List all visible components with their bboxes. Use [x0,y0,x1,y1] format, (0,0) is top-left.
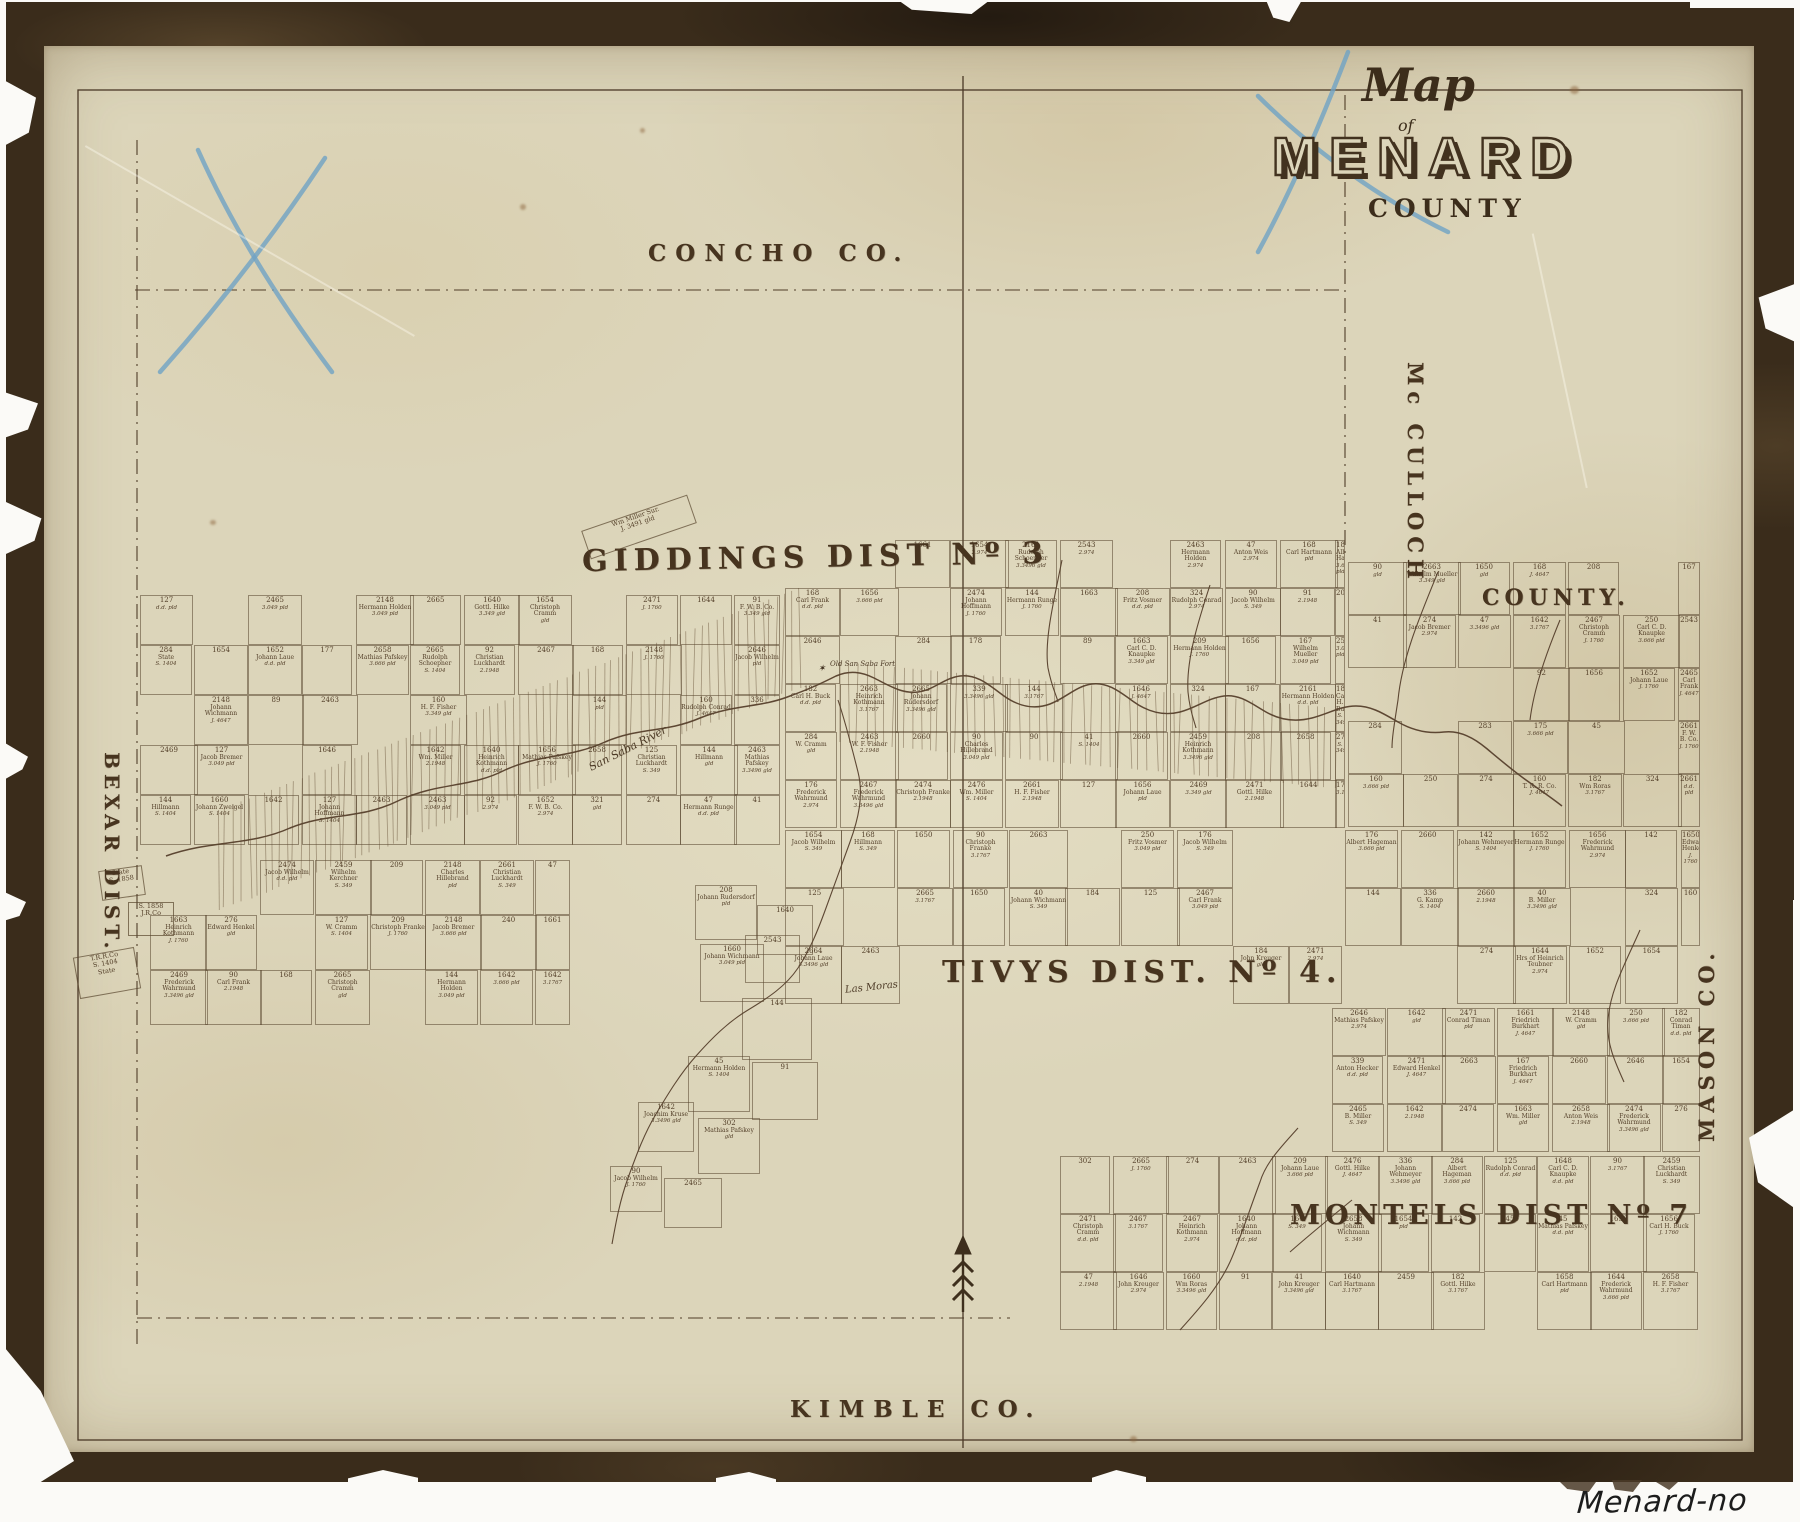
survey-plot: 24633.049 pld [410,795,465,845]
survey-plot: 2660 [1552,1056,1606,1104]
survey-plot: 40Johann WichmannS. 349 [1009,888,1068,946]
survey-plot: 1640Gottl. Hilke3.349 gld [464,595,520,645]
survey-plot: 41 [734,795,780,845]
survey-plot: 302 [1060,1156,1110,1214]
survey-plot: 2646Mathias Pafskey2.974 [1332,1008,1386,1056]
survey-plot: 2543 [745,935,800,983]
survey-plot: 274 [1458,774,1514,827]
survey-plot: 2465B. MillerS. 349 [1332,1104,1384,1152]
survey-plot: 45 [1568,721,1625,774]
survey-plot: 2474 [1442,1104,1494,1152]
survey-plot: 209Hermann HoldenJ. 1760 [1170,636,1229,684]
survey-plot: S. 1858J.R.Co [128,902,174,936]
label-tivys-district: TIVYS DIST. Nº 4. [942,955,1342,990]
survey-plot: 167 [1678,562,1700,615]
survey-plot: 144Hermann Holden3.049 pld [425,970,478,1025]
survey-plot: 1644Frederick Wahrmund3.666 pld [1590,1272,1642,1330]
survey-plot: 24693.349 gld [1170,780,1227,828]
survey-plot: 2543 [1678,615,1700,668]
survey-plot: 1644 [680,595,732,645]
survey-plot: 283 [1458,721,1512,774]
survey-plot: 208 [1225,732,1282,780]
survey-plot: 2658Anton Weis2.1948 [1552,1104,1610,1152]
survey-plot: 90Charles Hillebrand3.049 pld [950,732,1003,780]
survey-plot: 209 [370,860,423,915]
label-bexar-district: BEXAR DIST. [100,752,124,953]
survey-plot: 1654 [194,645,248,695]
survey-plot: 144Hillmanngld [680,745,738,795]
survey-plot: 1654Jacob WilhelmS. 349 [785,830,842,888]
survey-plot: 24653.049 pld [248,595,302,645]
survey-plot: 47Hermann Runged.d. pld [680,795,737,845]
survey-plot: 1652Johann Laued.d. pld [248,645,302,695]
survey-plot: 1652Hermann RungeJ. 1760 [1513,830,1566,888]
survey-plot: 250Fritz Vosmer3.049 pld [1121,830,1174,888]
survey-plot: 16423.666 pld [480,970,533,1025]
survey-plot: 184 [1065,888,1120,946]
survey-plot: 250 [1403,774,1458,827]
survey-plot: 144 [1345,888,1401,946]
survey-plot: 2665 [410,595,461,645]
survey-plot: 2463 [1219,1156,1276,1214]
survey-plot: 1642gld [1387,1008,1446,1056]
survey-plot: 89 [248,695,304,745]
survey-plot: 2467Christoph CrammJ. 1760 [1568,615,1620,668]
survey-plot: 2661Christian LuckhardtS. 349 [480,860,534,915]
survey-plot: 2465Carl FrankJ. 4647 [1678,668,1700,721]
survey-plot: 922.974 [464,795,517,845]
survey-plot: 1652F. W. B. Co.2.974 [518,795,573,845]
survey-plot: 92Christian Luckhardt2.1948 [464,645,515,695]
survey-plot: 2663 [1442,1056,1496,1104]
survey-plot: 2148Jacob Bremer3.666 pld [425,915,482,970]
label-montels-district: MONTELS DIST Nº 7 [1290,1200,1693,1231]
survey-plot: 184Carl H. BuckS. 349 [1335,684,1345,732]
survey-plot: 1663 [1060,588,1118,636]
survey-plot: 2467Heinrich Kothmann2.974 [1166,1214,1218,1272]
survey-plot: 2469 [140,745,198,795]
survey-plot: 208 [1335,588,1345,636]
survey-plot: 89 [1060,636,1115,684]
survey-plot: 473.3496 gld [1458,615,1511,668]
survey-plot: 1642 [248,795,299,845]
survey-plot: 1753.666 pld [1513,721,1568,774]
survey-plot: 1646J. 4647 [1115,684,1167,732]
survey-plot: 2467 [518,645,574,695]
survey-plot: 176Albert Hageman3.666 pld [1345,830,1398,888]
survey-plot: 1656 [1225,636,1276,684]
survey-plot: 324 [1623,774,1682,827]
survey-plot: 167 [1225,684,1280,732]
survey-plot: 2665Johann Rudersdorf3.3496 gld [895,684,947,732]
survey-plot: 168 [572,645,623,695]
survey-plot: 1443.1767 [1005,684,1063,732]
survey-plot: 1646John Kreuger2.974 [1113,1272,1164,1330]
survey-plot: 2658 [1280,732,1331,780]
survey-plot: 1652Johann LaueJ. 1760 [1623,668,1675,721]
survey-plot: 16423.1767 [1513,615,1566,668]
survey-plot: 2161Hermann Holdend.d. pld [1280,684,1336,732]
survey-plot: 127Jacob Bremer3.049 pld [194,745,249,795]
survey-plot: 2663 [1009,830,1068,888]
survey-plot: 1644Hrs of Heinrich Teubner2.974 [1513,946,1567,1004]
label-mcculloch-county-word: COUNTY. [1482,585,1630,611]
survey-plot: 274Jacob Bremer2.974 [1403,615,1456,668]
survey-plot: 2661H. F. Fisher2.1948 [1005,780,1059,828]
survey-plot: 324 [1625,888,1678,946]
survey-plot: 2471Edward HenkelJ. 4647 [1387,1056,1446,1104]
survey-plot: 90 [1005,732,1063,780]
survey-plot: 1663Carl C. D. Knaupke3.349 gld [1115,636,1168,684]
survey-plot: 2148Hermann Holden3.049 pld [356,595,414,645]
survey-plot: 2463Hermann Holden2.974 [1170,540,1221,588]
survey-plot: 324Rudolph Conrad2.974 [1170,588,1223,636]
survey-plot: 1640Carl Hartmann3.1767 [1325,1272,1379,1330]
survey-plot: 339Anton Heckerd.d. pld [1332,1056,1383,1104]
survey-plot: 2474Christoph Franke2.1948 [895,780,951,828]
survey-plot: 2663Heinrich Kothmann3.1767 [840,684,898,732]
survey-plot: 160T. R. R. Co.J. 4647 [1513,774,1566,827]
survey-plot: 25433.049 pld [1335,636,1345,684]
survey-plot: 2471J. 1760 [626,595,678,645]
survey-plot: 1661 [535,915,570,970]
survey-plot: 1603.666 pld [1348,774,1404,827]
survey-plot: 912.1948 [1280,588,1335,636]
survey-plot: 274S. 349 [1335,732,1345,780]
survey-plot: 1658Carl Hartmannpld [1537,1272,1592,1330]
survey-plot: 167Wilhelm Mueller3.049 pld [1280,636,1331,684]
survey-plot: 92 [1513,668,1570,721]
survey-plot: 1646 [302,745,352,795]
survey-plot: 142Johann WehmeyerS. 1404 [1457,830,1515,888]
survey-plot: 176Jacob WilhelmS. 349 [1177,830,1233,888]
survey-plot: 47Anton Weis2.974 [1225,540,1277,588]
survey-plot: 2148Charles Hillebrandpld [425,860,480,915]
survey-plot: 2463W. F. Fisher2.1948 [840,732,899,780]
label-concho-county: CONCHO CO. [648,240,910,267]
survey-plot: 176Frederick Wahrmund2.974 [785,780,837,828]
survey-plots-layer: 127d.d. pld24653.049 pld2148Hermann Hold… [0,0,1800,1522]
survey-plot: 336 [734,695,780,745]
survey-plot: 2148J. 1760 [626,645,682,695]
survey-plot: 90Jacob WilhelmJ. 1760 [610,1166,662,1212]
survey-plot: 26653.1767 [897,888,953,946]
survey-plot: 177 [302,645,352,695]
survey-plot: 90Jacob WilhelmS. 349 [1225,588,1281,636]
survey-plot: 2459 [1378,1272,1434,1330]
survey-plot: 1656 [1568,668,1620,721]
survey-plot: 127W. CrammS. 1404 [315,915,368,970]
survey-plot: 167Friedrich BurkhartJ. 4647 [1497,1056,1549,1104]
survey-plot: 41S. 1404 [1060,732,1118,780]
survey-plot: 1661Friedrich BurkhartJ. 4647 [1497,1008,1554,1056]
survey-plot: 2665Christoph Crammgld [315,970,370,1025]
survey-plot: 1656Johann Lauepld [1115,780,1170,828]
survey-plot: 208Fritz Vosmerd.d. pld [1115,588,1170,636]
survey-plot: 2661d.d. pld [1678,774,1700,827]
survey-plot: 284W. Crammgld [785,732,837,780]
survey-plot: 1783.1767 [1335,780,1345,828]
survey-plot: 160 [1681,888,1700,946]
handwritten-note: Menard-no date [1573,1482,1800,1522]
survey-plot: 90Christoph Franke3.1767 [953,830,1008,888]
survey-plot: 2469Frederick Wahrmund3.3496 gld [150,970,208,1025]
paper-tear [1793,900,1800,1522]
survey-plot: 2471Christoph Crammd.d. pld [1060,1214,1116,1272]
survey-plot: 91F. W. B. Co.3.349 gld [734,595,780,645]
survey-plot: 274 [1457,946,1516,1004]
survey-plot: 2471Gottl. Hilke2.1948 [1225,780,1284,828]
survey-plot: 47 [535,860,570,915]
survey-plot: 127 [1060,780,1117,828]
survey-plot: 2459Wilhelm KerchnerS. 349 [315,860,372,915]
survey-plot: 274 [1166,1156,1219,1214]
survey-plot: 2658Mathias Pafskey3.666 pld [356,645,409,695]
paper-tear [1690,0,1800,8]
survey-plot: 184Albert Hageman3.666 pld [1335,540,1345,588]
survey-plot: 336G. KampS. 1404 [1401,888,1459,946]
survey-plot: 1650Edward HenkelJ. 1760 [1681,830,1700,888]
survey-plot: 250Carl C. D. Knaupke3.666 pld [1623,615,1680,668]
survey-plot: 1652 [1569,946,1621,1004]
survey-plot: 2459Heinrich Kothmann3.3496 gld [1170,732,1226,780]
survey-plot: 1650 [897,830,950,888]
survey-plot: 1663Wm. Millergld [1497,1104,1549,1152]
survey-plot: 16563.666 pld [840,588,899,636]
survey-plot: 144HillmannS. 1404 [140,795,191,845]
survey-plot: 127d.d. pld [140,595,193,645]
stain [210,520,216,525]
survey-plot: 40B. Miller3.3496 gld [1513,888,1571,946]
survey-plot: 1650 [953,888,1005,946]
title-word-county: COUNTY [1368,194,1527,223]
survey-plot: 168HillmannS. 349 [841,830,895,888]
map-sheet: 127d.d. pld24653.049 pld2148Hermann Hold… [0,0,1800,1522]
survey-plot: 1640Johann Hoffmannd.d. pld [1219,1214,1274,1272]
survey-plot: 125 [1121,888,1180,946]
survey-plot: 168Carl Hartmannpld [1280,540,1338,588]
stain [640,128,645,133]
survey-plot: 209Christoph FrankeJ. 1760 [370,915,426,970]
survey-plot: 2148W. Crammgld [1552,1008,1610,1056]
label-mcculloch: Mc CULLOCH [1403,362,1428,585]
survey-plot: T.R.R.CoS. 1404State [73,947,141,999]
survey-plot: 2474Frederick Wahrmund3.3496 gld [1607,1104,1661,1152]
survey-plot: 127Johann HoffmannS. 1404 [302,795,357,845]
fort-star-icon: ✶ [818,664,826,674]
label-old-san-saba-fort: Old San Saba Fort [830,660,895,668]
survey-plot: 1656Mathias PafskeyJ. 1760 [518,745,576,795]
survey-plot: 142 [1625,830,1677,888]
survey-plot: 2463Mathias Pafskey3.3496 gld [734,745,780,795]
survey-plot: 1644 [1280,780,1337,828]
survey-plot: 160H. F. Fisher3.349 gld [410,695,467,745]
survey-plot: 324 [1170,684,1226,732]
survey-plot: 182Gottl. Hilke3.1767 [1431,1272,1485,1330]
survey-plot: 45Hermann HoldenS. 1404 [688,1056,750,1112]
survey-plot: 1642Joachim Kruse3.3496 gld [638,1102,694,1152]
survey-plot: 2476Wm. MillerS. 1404 [950,780,1003,828]
survey-plot: 2467Frederick Wahrmund3.3496 gld [840,780,897,828]
survey-plot: 2463 [302,695,358,745]
survey-plot: 240 [480,915,537,970]
survey-plot: 2660 [895,732,948,780]
survey-plot: 16423.1767 [535,970,570,1025]
survey-plot: 90gld [1348,562,1407,615]
survey-plot: 144pld [572,695,627,745]
title-county-name: MENARD [1272,126,1581,188]
survey-plot: 2503.666 pld [1607,1008,1665,1056]
survey-plot: 321gld [572,795,622,845]
survey-plot: 26602.1948 [1457,888,1515,946]
survey-plot: 25432.974 [1060,540,1113,588]
survey-plot: 160Rudolph ConradJ. 4647 [680,695,732,745]
survey-plot: 144Hermann RungeJ. 1760 [1005,588,1059,636]
survey-plot: 2661F. W. B. Co.J. 1760 [1678,721,1700,774]
survey-plot: 168Carl Frankd.d. pld [785,588,840,636]
survey-plot: 302Mathias Pafskeygld [698,1118,760,1174]
survey-plot: 1642Wm. Miller2.1948 [410,745,461,795]
survey-plot: 1654Christoph Crammgld [518,595,572,645]
survey-plot: 90Carl Frank2.1948 [205,970,262,1025]
survey-plot: 91 [1219,1272,1272,1330]
survey-plot: 2474Jacob Wilhelmd.d. pld [260,860,314,915]
survey-plot: 2660 [1401,830,1454,888]
survey-plot: 2463 [356,795,407,845]
survey-plot: 274 [626,795,681,845]
survey-plot: 1660Wm Roras3.3496 gld [1166,1272,1217,1330]
survey-plot: 2665J. 1760 [1113,1156,1169,1214]
survey-plot: 276Edward Henkelgld [205,915,257,970]
stain [1130,1436,1137,1442]
survey-plot: 2148Johann WichmannJ. 4647 [194,695,248,745]
survey-plot: 41John Kreuger3.3496 gld [1272,1272,1326,1330]
survey-plot: 1656Frederick Wahrmund2.974 [1569,830,1626,888]
survey-plot: 284 [895,636,952,684]
survey-plot: 91 [752,1062,818,1120]
survey-plot: 1640Heinrich Kothmannd.d. pld [464,745,519,795]
survey-plot: 208Johann Rudersdorfpld [695,885,757,940]
survey-plot: 284 [1348,721,1402,774]
survey-plot: 2658H. F. Fisher3.1767 [1643,1272,1698,1330]
stain [520,204,526,210]
label-mason-county: MASON CO. [1694,947,1719,1142]
survey-plot: 2646Jacob Wilhelmpld [734,645,780,695]
survey-plot: 16422.1948 [1387,1104,1442,1152]
survey-plot: 182Carl H. Buckd.d. pld [785,684,836,732]
label-kimble-county: KIMBLE CO. [790,1396,1042,1423]
survey-plot: 144 [742,998,812,1060]
survey-plot: 2646 [1607,1056,1664,1104]
survey-plot: 3393.3496 gld [950,684,1008,732]
survey-plot: 178 [950,636,1001,684]
survey-plot: 472.1948 [1060,1272,1117,1330]
stain [1570,86,1579,94]
title-word-map: Map [1362,58,1475,112]
survey-plot: 2465 [664,1178,722,1228]
survey-plot: 2467Carl Frank3.049 pld [1177,888,1233,946]
survey-plot: 168 [260,970,312,1025]
survey-plot: 182Wm Roras3.1767 [1568,774,1622,827]
survey-plot: 1660Johann ZweigelS. 1404 [194,795,245,845]
survey-plot: 1654 [1625,946,1678,1004]
survey-plot: 41 [1348,615,1407,668]
survey-plot: 2471Conrad Timanpld [1442,1008,1495,1056]
survey-plot: 2665Rudolph SchoepnerS. 1404 [410,645,460,695]
survey-plot: 2660 [1115,732,1168,780]
survey-plot: 2474Johann HoffmannJ. 1760 [950,588,1002,636]
survey-plot: 284StateS. 1404 [140,645,192,695]
survey-plot: 24673.1767 [1113,1214,1163,1272]
